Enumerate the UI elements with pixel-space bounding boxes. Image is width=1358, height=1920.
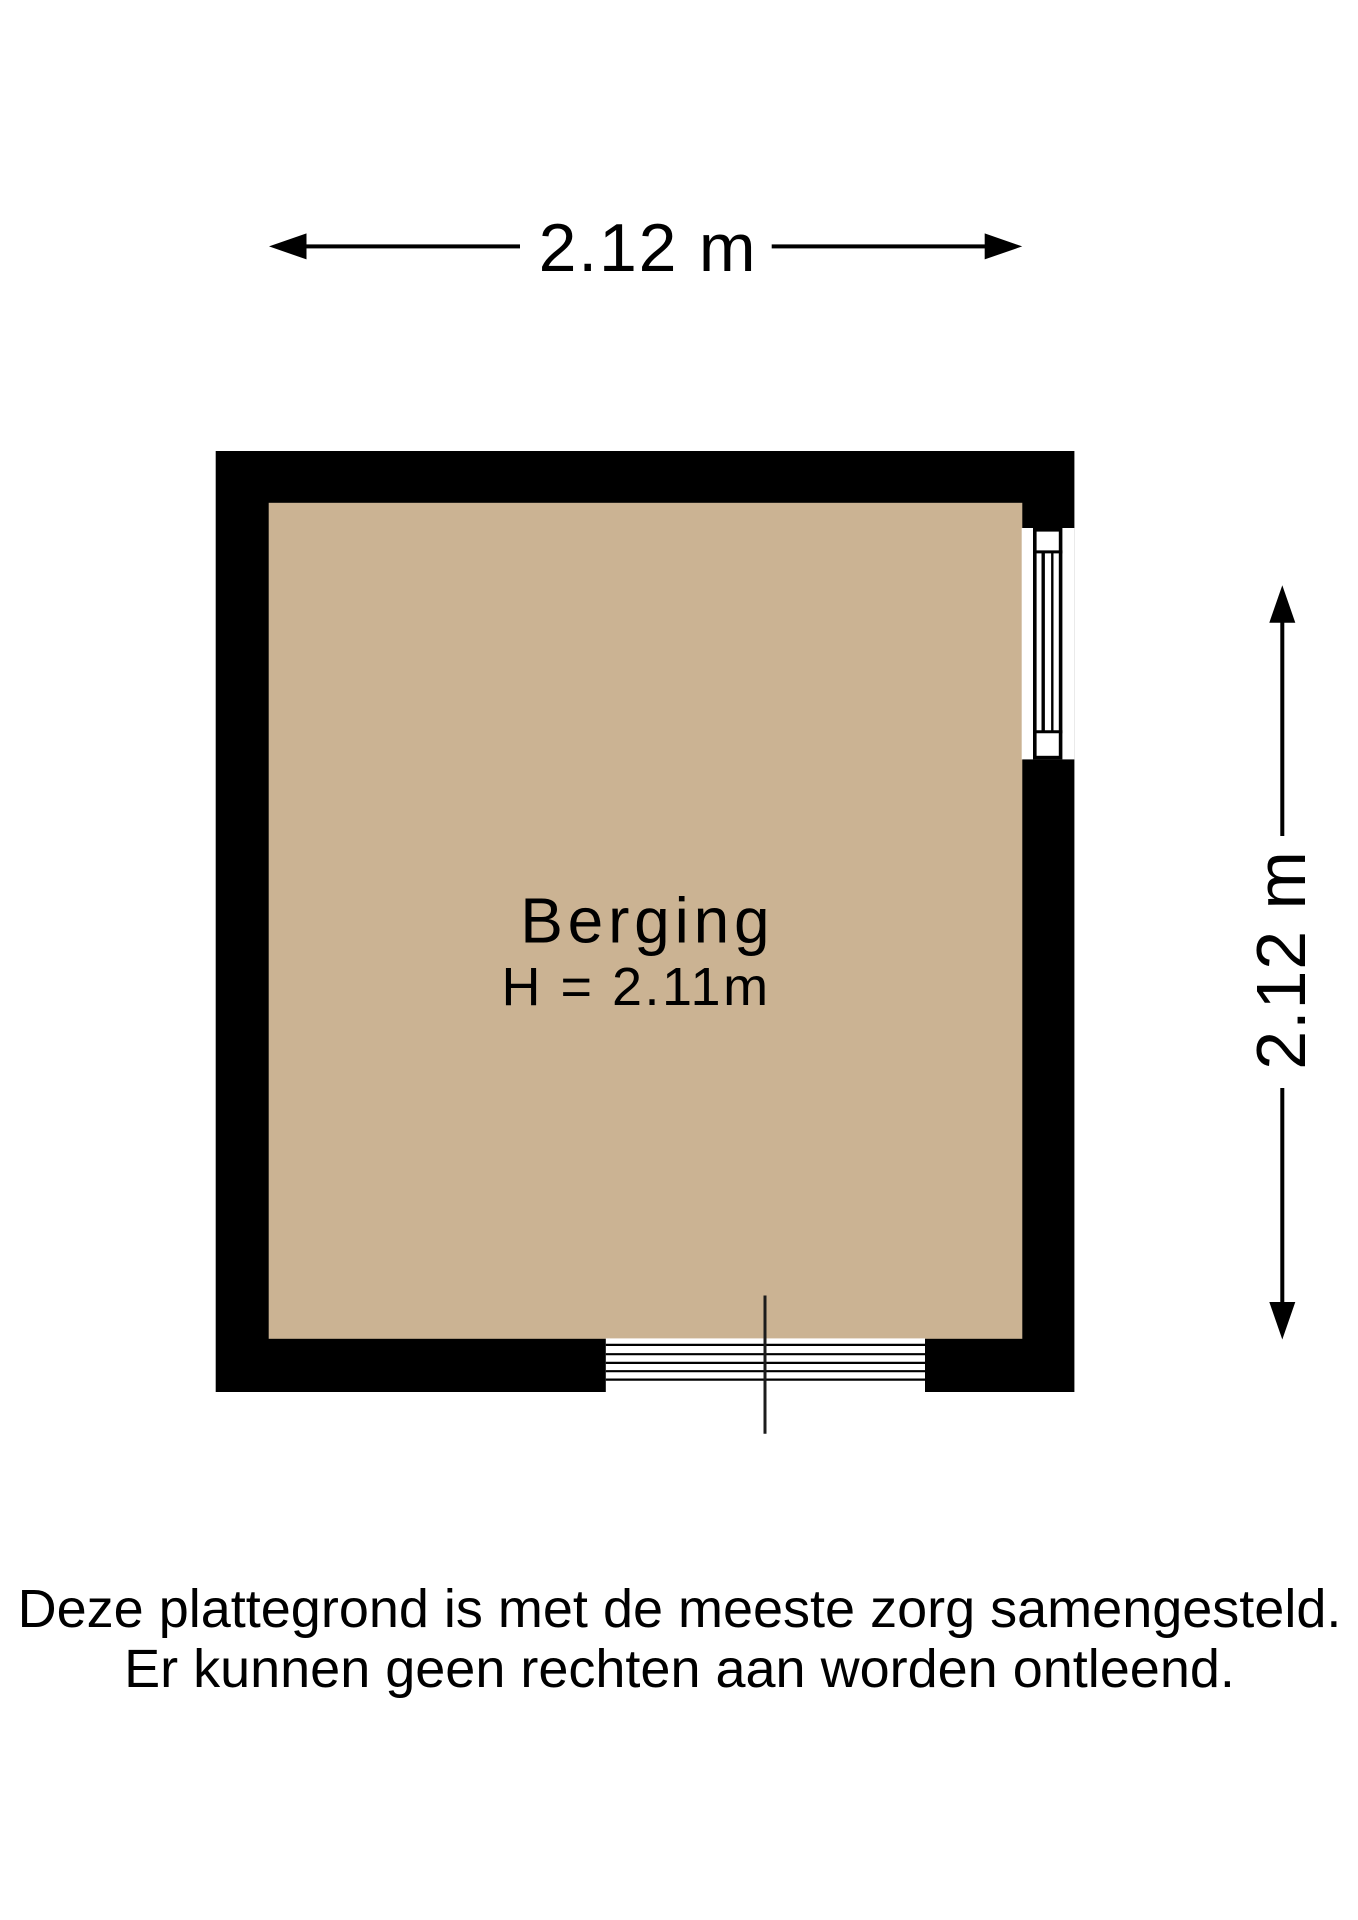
svg-text:Berging: Berging xyxy=(520,885,774,957)
svg-text:Deze plattegrond is met de mee: Deze plattegrond is met de meeste zorg s… xyxy=(18,1579,1342,1639)
svg-text:2.12 m: 2.12 m xyxy=(539,210,758,286)
svg-text:H = 2.11m: H = 2.11m xyxy=(501,957,770,1017)
svg-text:2.12 m: 2.12 m xyxy=(1242,850,1320,1069)
svg-text:Er kunnen geen rechten aan wor: Er kunnen geen rechten aan worden ontlee… xyxy=(124,1639,1235,1699)
